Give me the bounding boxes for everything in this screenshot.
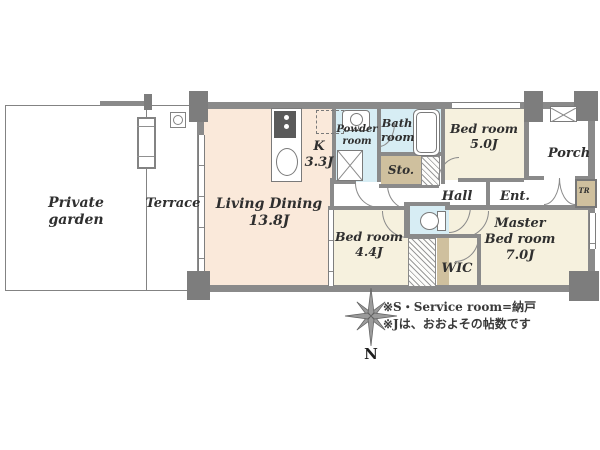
room-name: WIC [441, 261, 472, 276]
x-mark [551, 108, 576, 122]
window [452, 102, 520, 109]
wall [100, 101, 147, 106]
room-name: Private garden [48, 195, 104, 228]
room-name: Bed room [450, 121, 518, 136]
stove-burner [284, 124, 289, 129]
bedroom-4-label: Bed room 4.4J [331, 229, 407, 260]
trunk-room-label: TR [576, 187, 592, 196]
wic-label: WIC [436, 261, 478, 277]
room-name: Terrace [146, 196, 201, 211]
room-name: Master Bed room [485, 216, 556, 247]
hall-label: Hall [436, 189, 478, 205]
room-size: 13.8J [209, 213, 329, 230]
wall [486, 182, 490, 206]
bedroom-5-label: Bed room 5.0J [444, 121, 524, 152]
entrance-door-arc [559, 178, 575, 205]
stove-burner [284, 115, 289, 120]
room-name: Hall [442, 189, 473, 204]
closet-hatch [408, 238, 436, 287]
room-name: Sto. [388, 163, 414, 177]
room-name: Ent. [500, 189, 530, 204]
toilet-icon [420, 212, 439, 230]
entrance-door-arc [544, 178, 560, 205]
room-size: 7.0J [482, 248, 558, 264]
room-size: 3.3J [297, 155, 341, 171]
pillar [189, 91, 208, 122]
window [589, 213, 596, 249]
wall [536, 176, 544, 180]
room-name: Porch [548, 146, 590, 161]
room-name: Bath room [381, 116, 415, 144]
private-garden-label: Private garden [20, 195, 132, 229]
room-name: Powder room [336, 124, 377, 147]
storage-label: Sto. [383, 163, 419, 178]
room-size: 4.4J [331, 244, 407, 259]
pillar [187, 271, 210, 300]
note-line: ※Jは、おおよその帖数です [383, 315, 531, 332]
closet-hatch [421, 156, 440, 186]
room-name: Living Dining [216, 196, 322, 212]
door-arc [355, 183, 379, 208]
entrance-label: Ent. [495, 189, 535, 205]
master-bedroom-label: Master Bed room 7.0J [482, 216, 558, 264]
bathtub-icon [416, 112, 437, 153]
meter-box [550, 106, 577, 122]
pillar [569, 271, 599, 301]
room-name: K [313, 139, 324, 154]
room-name: TR [578, 186, 589, 195]
pillar [524, 91, 543, 122]
floor-plan: Private garden Terrace Living Dining 13.… [0, 0, 600, 450]
note-line: ※S・Service room=納戸 [383, 298, 536, 315]
gate-bar [137, 126, 154, 127]
room-name: Bed room [335, 229, 403, 244]
north-label: N [361, 345, 381, 363]
living-dining-label: Living Dining 13.8J [209, 196, 329, 230]
x-mark [338, 151, 362, 180]
porch-label: Porch [545, 146, 593, 162]
terrace-label: Terrace [141, 196, 205, 212]
kitchen-label: K 3.3J [297, 139, 341, 171]
bath-room-label: Bath room [381, 116, 413, 144]
pillar [574, 91, 598, 121]
kitchen-sink-icon [276, 148, 298, 176]
room-size: 5.0J [444, 136, 524, 151]
gate-bar [137, 156, 154, 157]
gate-symbol [137, 117, 156, 169]
wall [458, 178, 524, 182]
fence-post [144, 94, 152, 110]
outdoor-light-icon [173, 115, 183, 125]
powder-room-label: Powder room [336, 124, 378, 148]
